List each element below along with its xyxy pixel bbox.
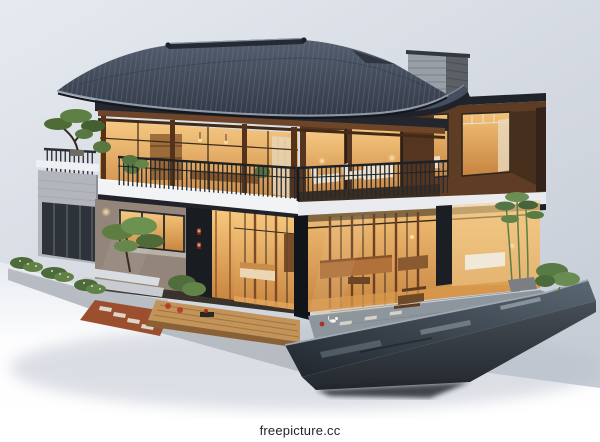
concrete-volume bbox=[36, 160, 99, 264]
house-render bbox=[0, 0, 600, 420]
balcony-shrub bbox=[93, 141, 111, 153]
red-kettle bbox=[320, 322, 325, 327]
corner-pillar bbox=[294, 215, 310, 320]
stock-photo-page: freepicture.cc bbox=[0, 0, 600, 442]
watermark-bar: freepicture.cc bbox=[0, 420, 600, 442]
watermark-text: freepicture.cc bbox=[260, 420, 341, 442]
side-glazing bbox=[42, 202, 97, 262]
